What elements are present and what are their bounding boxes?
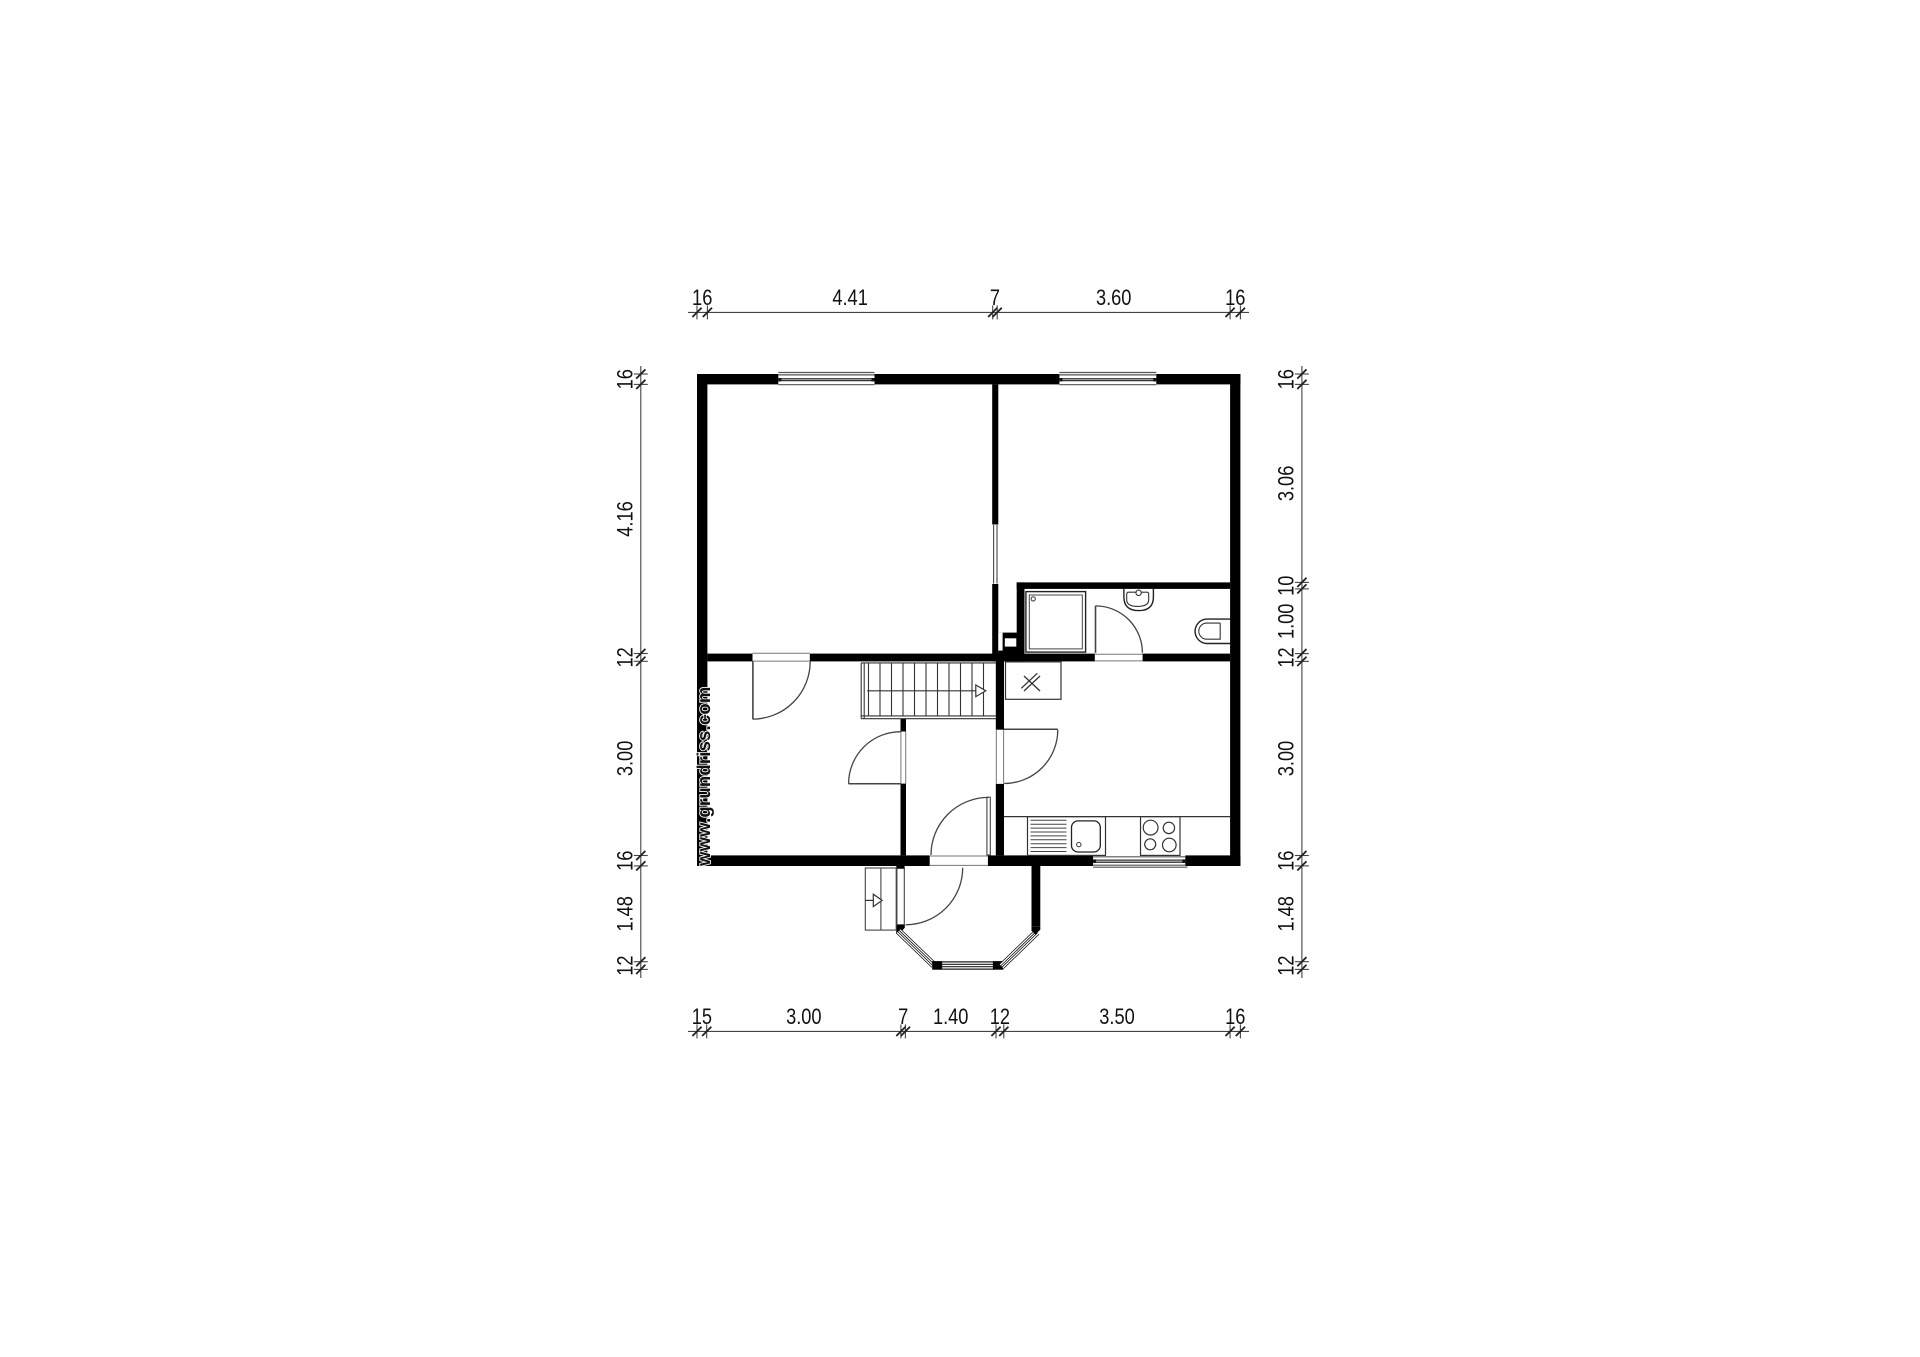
svg-text:16: 16 <box>692 285 712 310</box>
svg-text:4.16: 4.16 <box>613 501 638 536</box>
svg-text:7: 7 <box>990 285 1000 310</box>
svg-text:15: 15 <box>692 1004 712 1029</box>
svg-text:12: 12 <box>1274 955 1299 975</box>
svg-text:10: 10 <box>1274 576 1299 596</box>
svg-text:16: 16 <box>1274 369 1299 389</box>
svg-text:3.00: 3.00 <box>1274 741 1299 776</box>
svg-text:16: 16 <box>613 369 638 389</box>
svg-text:16: 16 <box>1225 1004 1245 1029</box>
svg-text:1.48: 1.48 <box>1274 896 1299 931</box>
svg-text:3.50: 3.50 <box>1099 1004 1134 1029</box>
svg-text:1.00: 1.00 <box>1274 604 1299 639</box>
svg-text:1.40: 1.40 <box>933 1004 968 1029</box>
svg-text:3.00: 3.00 <box>613 741 638 776</box>
svg-text:12: 12 <box>613 647 638 667</box>
svg-text:3.06: 3.06 <box>1274 466 1299 501</box>
svg-text:7: 7 <box>898 1004 908 1029</box>
svg-text:3.00: 3.00 <box>786 1004 821 1029</box>
svg-text:1.48: 1.48 <box>613 896 638 931</box>
svg-text:12: 12 <box>613 955 638 975</box>
svg-text:4.41: 4.41 <box>832 285 867 310</box>
svg-text:3.60: 3.60 <box>1096 285 1131 310</box>
svg-text:12: 12 <box>1274 647 1299 667</box>
svg-text:www.grundriss.com: www.grundriss.com <box>693 686 714 867</box>
svg-text:16: 16 <box>1274 851 1299 871</box>
svg-text:16: 16 <box>1225 285 1245 310</box>
svg-text:16: 16 <box>613 851 638 871</box>
svg-text:12: 12 <box>990 1004 1010 1029</box>
